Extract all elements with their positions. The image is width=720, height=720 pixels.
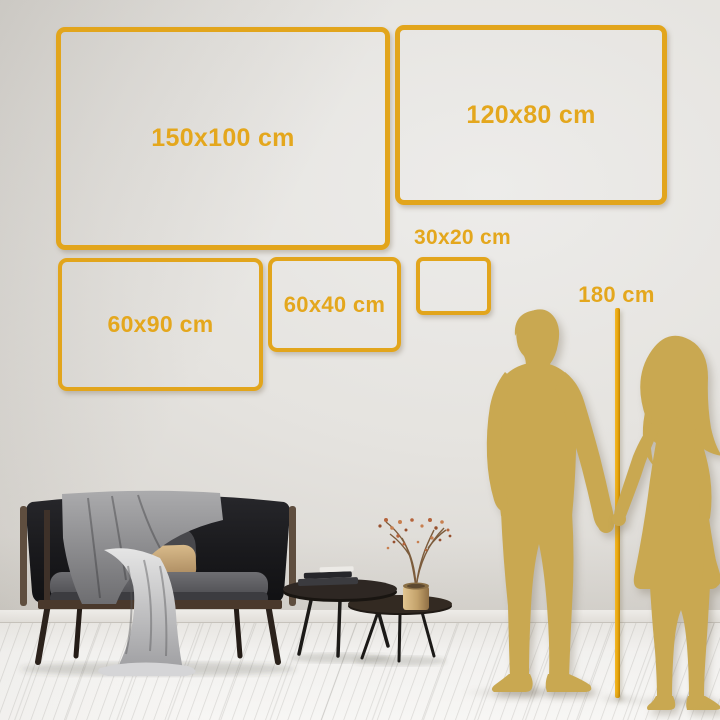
size-label-60x90: 60x90 cm <box>108 311 214 338</box>
sofa-wood-post <box>44 510 50 604</box>
branch-stems <box>386 522 446 588</box>
size-frame-60x40: 60x40 cm <box>268 257 401 352</box>
coffee-tables-image <box>282 496 457 668</box>
vase <box>403 586 429 610</box>
woman-legs <box>650 586 710 698</box>
size-label-60x40: 60x40 cm <box>284 292 386 318</box>
small-table-legs <box>362 612 434 661</box>
woman-shoe <box>686 696 720 710</box>
size-frame-120x80: 120x80 cm <box>395 25 667 205</box>
sofa-image <box>8 486 308 681</box>
vase-opening <box>407 584 425 588</box>
books-stack <box>298 566 359 586</box>
woman-hand <box>612 512 626 526</box>
man-shoe <box>492 674 533 692</box>
size-frame-150x100: 150x100 cm <box>56 27 390 250</box>
size-label-120x80: 120x80 cm <box>466 101 595 130</box>
size-label-30x20: 30x20 cm <box>414 226 511 250</box>
height-ruler-label: 180 cm <box>559 282 674 308</box>
size-label-150x100: 150x100 cm <box>151 124 294 153</box>
size-frame-60x90: 60x90 cm <box>58 258 263 391</box>
size-comparison-scene: 150x100 cm 120x80 cm 60x90 cm 60x40 cm 3… <box>0 0 720 720</box>
man-legs <box>501 512 574 678</box>
woman-shoe <box>647 696 675 710</box>
man-silhouette <box>445 306 625 696</box>
man-shoe <box>546 674 592 692</box>
woman-silhouette <box>606 326 720 710</box>
sofa-wood-post <box>20 506 27 606</box>
